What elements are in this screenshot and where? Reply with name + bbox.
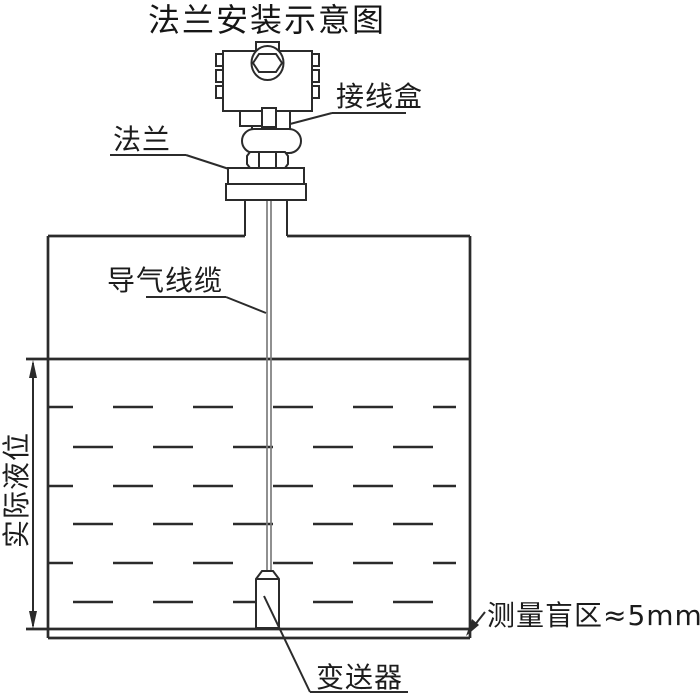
- flange-installation-diagram: 实际液位 接线盒: [0, 0, 700, 700]
- swivel-connector: [242, 129, 301, 153]
- junction-box-label: 接线盒: [336, 80, 423, 113]
- terminal-block: [240, 111, 264, 126]
- flange-upper-plate: [228, 168, 304, 184]
- dimension-arrow-down-icon: [29, 611, 37, 629]
- hex-nut: [247, 152, 288, 168]
- nozzle-neck: [245, 200, 287, 236]
- display-cap: [252, 46, 284, 80]
- liquid: [26, 359, 470, 602]
- flange-label: 法兰: [113, 123, 171, 156]
- callout-air-cable: 导气线缆: [107, 264, 266, 313]
- diagram-title: 法兰安装示意图: [148, 1, 386, 39]
- air-cable-label: 导气线缆: [107, 264, 223, 297]
- air-cable-leader: [226, 297, 266, 313]
- callout-flange: 法兰: [110, 123, 229, 169]
- transmitter-label: 变送器: [316, 661, 403, 694]
- flange-lower-plate: [226, 184, 306, 200]
- level-dimension: 实际液位: [0, 360, 37, 629]
- dimension-arrow-up-icon: [29, 360, 37, 378]
- callout-transmitter: 变送器: [264, 596, 408, 694]
- tank-outline: [26, 236, 470, 638]
- air-guide-cable: [267, 200, 271, 572]
- transmitter-leader: [264, 596, 310, 692]
- terminal-screw: [262, 108, 276, 127]
- flange-leader: [186, 155, 229, 169]
- actual-level-label: 实际液位: [0, 432, 33, 548]
- junction-box-leader: [290, 113, 332, 124]
- callout-blind-zone: 测量盲区≈5mm: [466, 599, 700, 636]
- diagram-canvas: 实际液位 接线盒: [0, 0, 700, 700]
- blind-zone-label: 测量盲区≈5mm: [487, 599, 700, 632]
